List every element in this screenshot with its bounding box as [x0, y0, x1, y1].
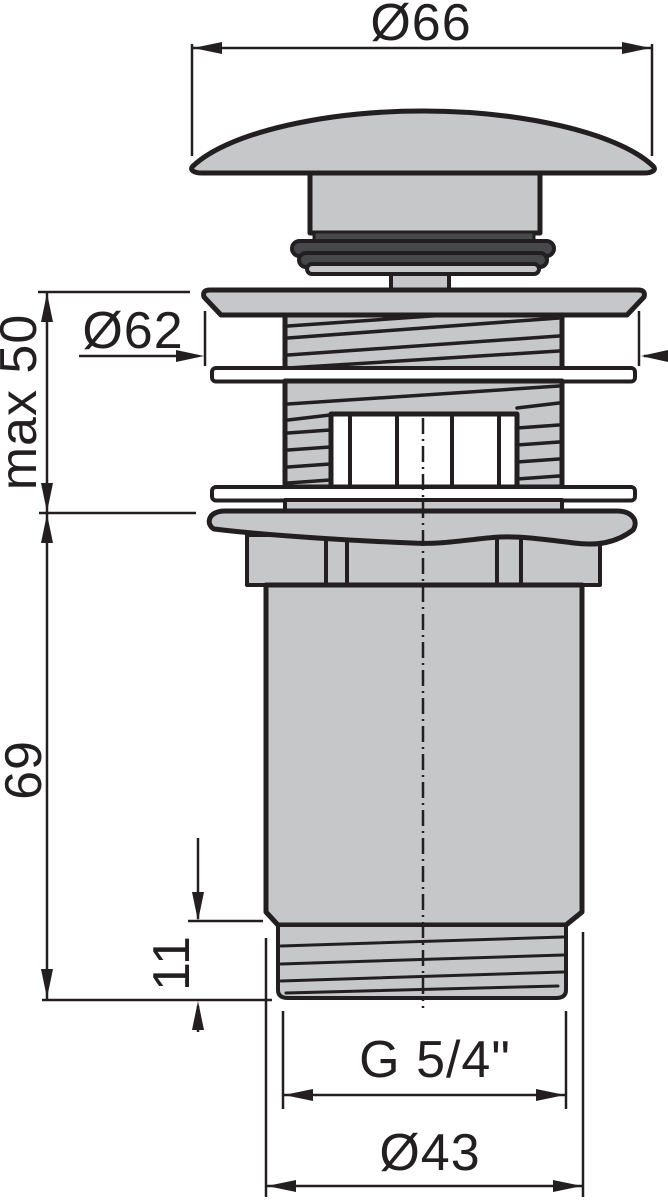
arrow-left-icon	[193, 42, 222, 54]
arrow-up-icon	[41, 514, 53, 543]
arrow-right-icon	[622, 42, 651, 54]
arrow-left-icon	[284, 1089, 313, 1101]
top-flange	[204, 290, 645, 315]
arrow-down-icon	[192, 892, 204, 921]
cap-cylinder	[310, 171, 540, 233]
outlet-diameter-label: Ø43	[379, 1124, 480, 1182]
arrow-down-icon	[41, 969, 53, 998]
drain-valve-drawing: Ø66 Ø62 max 50 69	[0, 0, 668, 1200]
cap-diameter-label: Ø66	[370, 0, 471, 52]
thread-length-label: 11	[143, 935, 201, 991]
max-clamp-label: max 50	[0, 314, 48, 491]
cap-assembly	[192, 111, 655, 292]
body-length-label: 69	[0, 740, 53, 800]
seal-washer	[307, 264, 539, 274]
technical-drawing-page: Ø66 Ø62 max 50 69	[0, 0, 668, 1200]
dim-body-length: 69	[0, 513, 272, 1000]
arrow-right-icon	[536, 1089, 565, 1101]
arrow-left-icon	[641, 350, 668, 362]
dim-thread-size: G 5/4"	[283, 1011, 566, 1109]
flange-diameter-label: Ø62	[82, 302, 183, 360]
arrow-right-icon	[553, 1180, 582, 1192]
thread-size-label: G 5/4"	[359, 1031, 511, 1089]
arrow-left-icon	[267, 1180, 296, 1192]
cap-dome	[192, 111, 655, 173]
dim-thread-length: 11	[143, 838, 263, 1032]
